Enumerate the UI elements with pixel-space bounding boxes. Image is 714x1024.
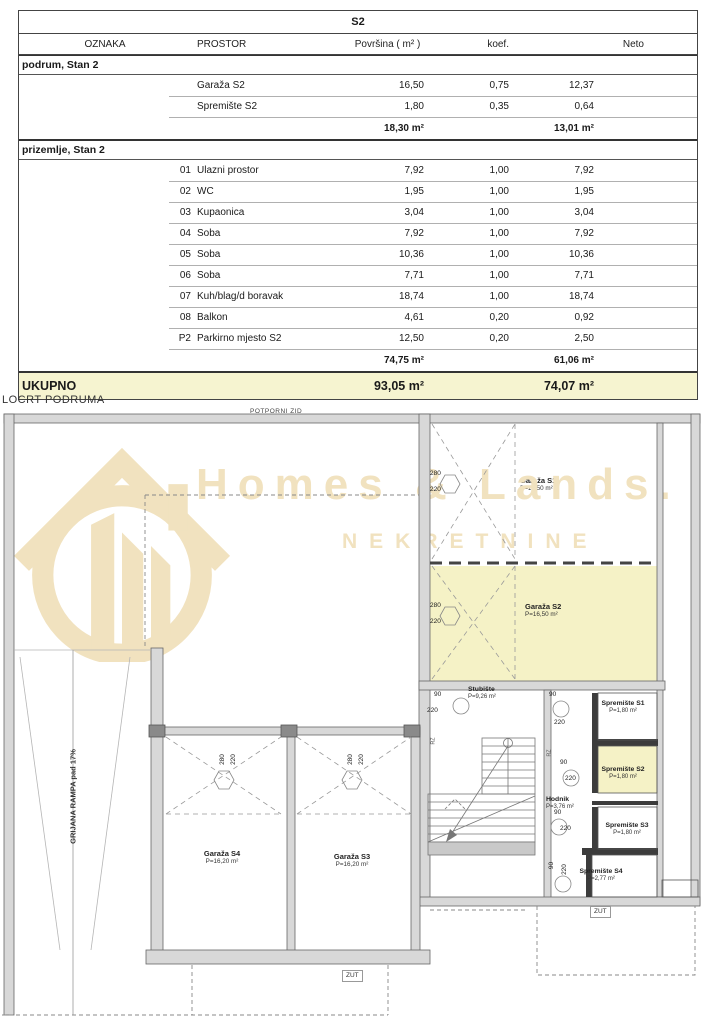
table-row: 01 Ulazni prostor 7,92 1,00 7,92 [19,160,697,181]
area-table: S2 OZNAKA PROSTOR Površina ( m² ) koef. … [18,10,698,400]
dimension-label: 220 [430,486,441,493]
dimension-label: 220 [560,825,571,832]
cell-prostor: Kuh/blag/d boravak [191,291,351,302]
rz-marker: RZ [431,737,437,744]
room-label-garaza-s4: Garaža S4 P=16,20 m² [182,849,262,866]
table-row: 05 Soba 10,36 1,00 10,36 [19,244,697,265]
room-name: Garaža S2 [525,602,561,611]
col-header-oznaka: OZNAKA [19,39,191,50]
subtotal-row-podrum: 18,30 m² 13,01 m² [19,117,697,140]
col-header-koef: koef. [424,39,509,50]
subtotal-povrsina: 74,75 m² [351,355,424,366]
room-label-spremiste-s2: Spremište S2 P=1,80 m² [588,766,658,782]
dimension-label: 90 [548,862,555,869]
dimension-label: 220 [554,719,565,726]
table-row: 06 Soba 7,71 1,00 7,71 [19,265,697,286]
cell-neto: 12,37 [509,80,644,91]
dimension-label: 90 [434,691,441,698]
cell-povrsina: 4,61 [351,312,424,323]
zut-label: ZUT [342,970,363,982]
cell-prostor: Kupaonica [191,207,351,218]
cell-povrsina: 7,92 [351,228,424,239]
cell-oznaka: 02 [19,186,191,197]
dimension-label: 220 [561,864,568,875]
cell-neto: 2,50 [509,333,644,344]
cell-koef: 0,20 [424,333,509,344]
cell-povrsina: 1,80 [351,101,424,112]
dimension-label: 280 [219,754,226,765]
room-name: Garaža S4 [182,849,262,858]
room-label-spremiste-s1: Spremište S1 P=1,80 m² [588,700,658,716]
cell-oznaka: 07 [19,291,191,302]
cell-prostor: Ulazni prostor [191,165,351,176]
cell-oznaka: 03 [19,207,191,218]
room-label-stubiste: Stubište P=9,26 m² [468,686,496,702]
dimension-label: 220 [427,707,438,714]
cell-koef: 1,00 [424,249,509,260]
dimension-label: 90 [554,809,561,816]
room-area: P=9,26 m² [468,694,496,702]
zut-label: ZUT [590,906,611,918]
table-row: 03 Kupaonica 3,04 1,00 3,04 [19,202,697,223]
cell-oznaka: 01 [19,165,191,176]
cell-neto: 1,95 [509,186,644,197]
cell-oznaka: 04 [19,228,191,239]
dimension-label: 280 [347,754,354,765]
room-label-garaza-s2: Garaža S2 P=16,50 m² [525,602,561,619]
dimension-label: 220 [358,754,365,765]
col-header-neto: Neto [509,39,644,50]
cell-neto: 7,92 [509,228,644,239]
room-area: P=16,20 m² [182,858,262,866]
cell-prostor: Soba [191,270,351,281]
table-row: Garaža S2 16,50 0,75 12,37 [19,75,697,96]
cell-neto: 3,04 [509,207,644,218]
room-name: Hodnik [546,796,574,804]
cell-povrsina: 18,74 [351,291,424,302]
cell-prostor: Garaža S2 [191,80,351,91]
highlighted-rooms [430,566,657,793]
room-area: P=16,20 m² [312,861,392,869]
cell-neto: 7,71 [509,270,644,281]
table-row: 07 Kuh/blag/d boravak 18,74 1,00 18,74 [19,286,697,307]
table-row: 04 Soba 7,92 1,00 7,92 [19,223,697,244]
subtotal-povrsina: 18,30 m² [351,123,424,134]
cell-povrsina: 3,04 [351,207,424,218]
storage-walls [582,693,658,897]
total-neto: 74,07 m² [509,379,644,393]
cell-neto: 18,74 [509,291,644,302]
section-header-podrum: podrum, Stan 2 [19,55,697,75]
cell-prostor: Spremište S2 [191,101,351,112]
staircase [428,738,535,855]
section-header-prizemlje: prizemlje, Stan 2 [19,140,697,160]
cell-neto: 0,64 [509,101,644,112]
stair-arrow [446,829,457,842]
room-label-spremiste-s3: Spremište S3 P=1,80 m² [592,822,662,838]
cell-koef: 1,00 [424,291,509,302]
dimension-label: 220 [430,618,441,625]
room-name: Spremište S1 [588,700,658,708]
cell-koef: 1,00 [424,207,509,218]
cell-koef: 1,00 [424,165,509,176]
room-area: P=1,80 m² [588,708,658,716]
cell-oznaka: 05 [19,249,191,260]
col-header-prostor: PROSTOR [191,39,351,50]
cell-prostor: Soba [191,228,351,239]
cell-oznaka: 08 [19,312,191,323]
storage-room-outlines [592,693,698,897]
dimension-label: 90 [549,691,556,698]
subtotal-row-prizemlje: 74,75 m² 61,06 m² [19,349,697,372]
dimension-label: 280 [430,602,441,609]
cell-koef: 0,20 [424,312,509,323]
subtotal-neto: 13,01 m² [509,123,644,134]
cell-koef: 1,00 [424,228,509,239]
grijana-rampa-label: GRIJANA RAMPA pad 17% [69,697,78,897]
dimension-label: 220 [565,775,576,782]
col-header-povrsina: Površina ( m² ) [351,39,424,50]
room-area: P=16,50 m² [525,611,561,619]
cell-prostor: WC [191,186,351,197]
room-name: Spremište S3 [592,822,662,830]
cell-neto: 0,92 [509,312,644,323]
cell-prostor: Parkirno mjesto S2 [191,333,351,344]
dimension-label: 90 [560,759,567,766]
room-label-garaza-s3: Garaža S3 P=16,20 m² [312,852,392,869]
cell-prostor: Soba [191,249,351,260]
ramp [14,650,151,1015]
room-area: P=1,80 m² [592,830,662,838]
room-name: Stubište [468,686,496,694]
subtotal-neto: 61,06 m² [509,355,644,366]
cell-koef: 1,00 [424,186,509,197]
cell-povrsina: 12,50 [351,333,424,344]
cell-oznaka: 06 [19,270,191,281]
cell-neto: 7,92 [509,165,644,176]
total-povrsina: 93,05 m² [351,379,424,393]
table-row: Spremište S2 1,80 0,35 0,64 [19,96,697,117]
cell-koef: 0,75 [424,80,509,91]
table-row: 02 WC 1,95 1,00 1,95 [19,181,697,202]
basement-floor-plan: LOCRT PODRUMA Homes & Lands. NEKRETNINE [0,394,714,1024]
plan-title: LOCRT PODRUMA [2,394,105,406]
cell-prostor: Balkon [191,312,351,323]
room-name: Spremište S2 [588,766,658,774]
cell-povrsina: 7,71 [351,270,424,281]
cell-neto: 10,36 [509,249,644,260]
cell-oznaka: P2 [19,333,191,344]
rz-marker: RZ [547,749,553,756]
room-name: Garaža S3 [312,852,392,861]
table-header-row: OZNAKA PROSTOR Površina ( m² ) koef. Net… [19,34,697,55]
cell-povrsina: 16,50 [351,80,424,91]
table-title: S2 [19,11,697,34]
cell-koef: 0,35 [424,101,509,112]
table-row: P2 Parkirno mjesto S2 12,50 0,20 2,50 [19,328,697,349]
potporni-zid-label: POTPORNI ZID [250,408,302,415]
cell-povrsina: 10,36 [351,249,424,260]
cell-koef: 1,00 [424,270,509,281]
total-label: UKUPNO [19,379,351,393]
cell-povrsina: 1,95 [351,186,424,197]
cell-povrsina: 7,92 [351,165,424,176]
table-row: 08 Balkon 4,61 0,20 0,92 [19,307,697,328]
room-name: Spremište S4 [566,868,636,876]
dimension-label: 220 [230,754,237,765]
dimension-label: 280 [430,470,441,477]
room-area: P=2,77 m² [566,876,636,884]
room-area: P=1,80 m² [588,774,658,782]
room-label-spremiste-s4: Spremište S4 P=2,77 m² [566,868,636,884]
